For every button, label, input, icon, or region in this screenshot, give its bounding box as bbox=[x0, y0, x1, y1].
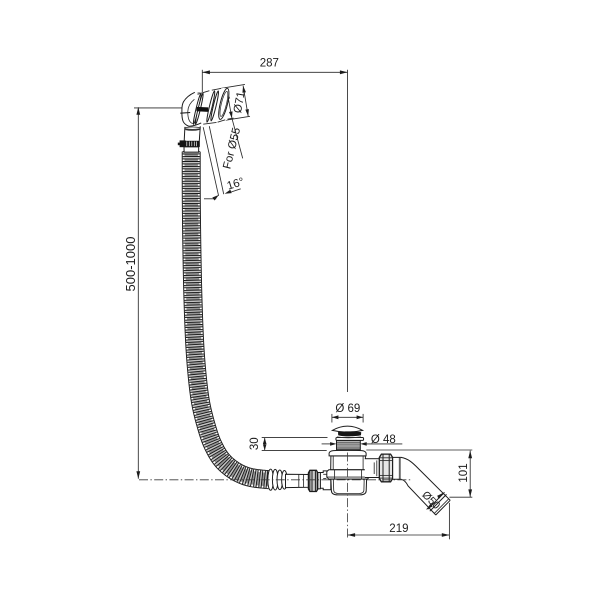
svg-text:101: 101 bbox=[458, 463, 470, 482]
svg-text:Ø 48: Ø 48 bbox=[371, 434, 396, 446]
svg-text:Ø 69: Ø 69 bbox=[335, 403, 360, 415]
svg-text:30: 30 bbox=[249, 437, 261, 450]
svg-text:219: 219 bbox=[389, 523, 408, 535]
svg-text:500-1000: 500-1000 bbox=[123, 237, 138, 292]
svg-text:287: 287 bbox=[260, 58, 279, 70]
